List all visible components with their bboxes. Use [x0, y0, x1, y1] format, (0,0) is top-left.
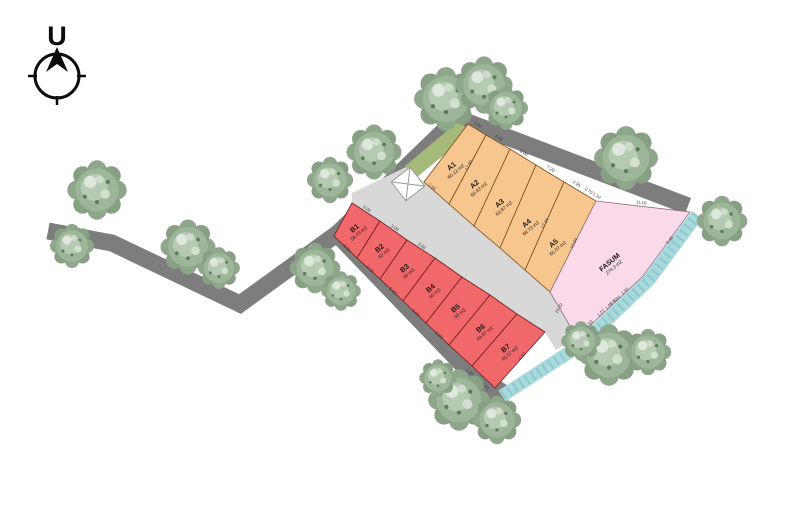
tree-icon [321, 271, 361, 311]
tree-icon [419, 359, 456, 396]
dimension-label: 11.18 [636, 199, 648, 205]
tree-icon [484, 86, 528, 130]
tree-icon [561, 321, 601, 361]
tree-icon [50, 224, 94, 268]
tree-icon [697, 196, 748, 247]
dimension-label: 2.95 [572, 179, 582, 188]
tree-icon [594, 126, 658, 190]
tree-icon [347, 125, 402, 180]
tree-icon [625, 329, 671, 375]
site-plan-scene: A160.12 m2A260.93 m2A363.87 m2A468.73 m2… [0, 0, 804, 515]
tree-icon [307, 157, 353, 203]
compass-rose: U [28, 21, 86, 105]
compass-label: U [47, 21, 67, 51]
tree-icon [473, 396, 521, 444]
tree-icon [198, 247, 240, 289]
site-plan-canvas: A160.12 m2A260.93 m2A363.87 m2A468.73 m2… [0, 0, 804, 515]
tree-icon [67, 160, 126, 219]
